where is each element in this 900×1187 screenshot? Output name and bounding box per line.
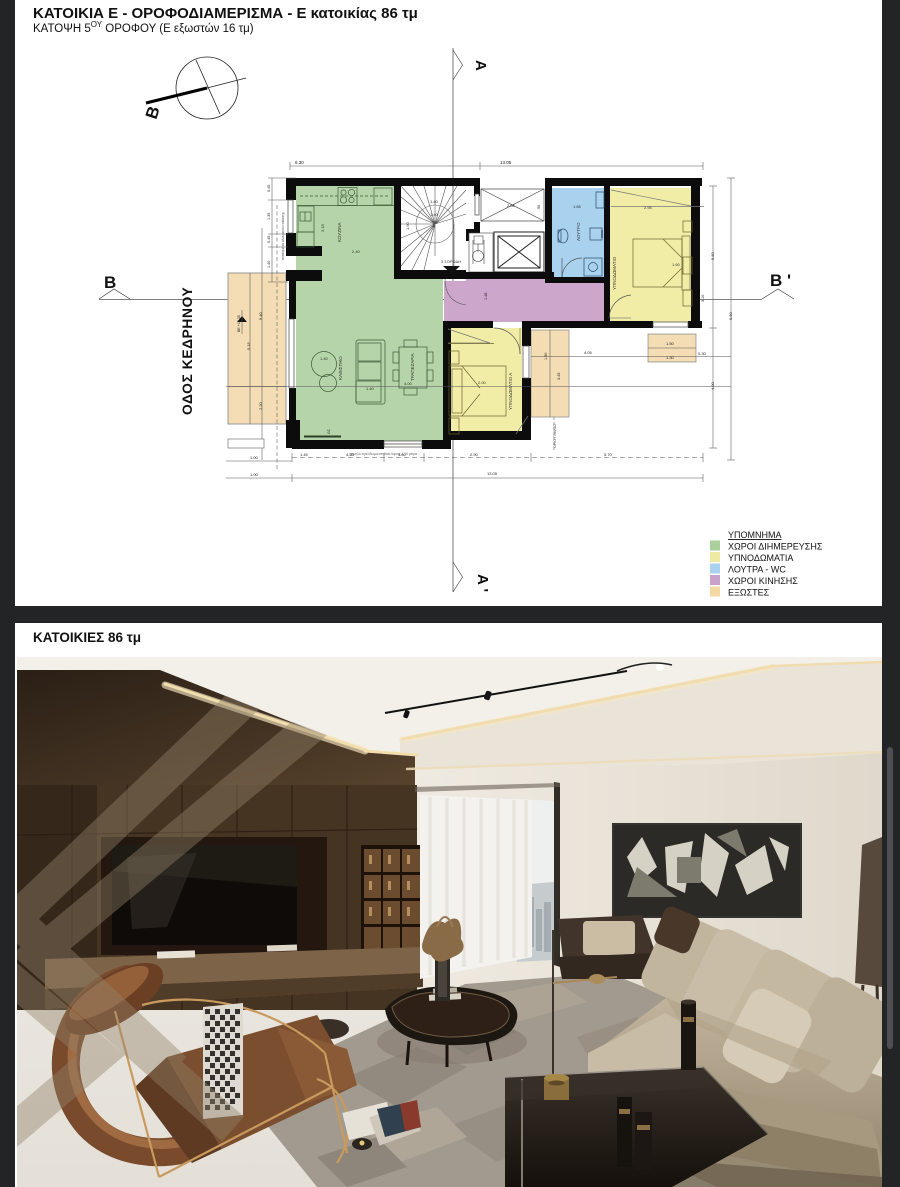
svg-text:2.95: 2.95 [644,205,653,210]
svg-text:9.50: 9.50 [728,311,733,320]
svg-text:1.60: 1.60 [672,262,681,267]
svg-text:A: A [472,60,489,71]
svg-text:9.40: 9.40 [258,311,263,320]
svg-text:0.45: 0.45 [267,236,271,243]
svg-text:4.00: 4.00 [710,381,715,390]
svg-text:0.30: 0.30 [698,351,707,356]
svg-text:ΥΠΟΜΝΗΜΑ: ΥΠΟΜΝΗΜΑ [728,530,782,540]
svg-text:13.05: 13.05 [500,160,512,165]
svg-text:χαμηλό κιγκλίδωμα/στηθαίο ύψου: χαμηλό κιγκλίδωμα/στηθαίο ύψους 1.10 μέτ… [350,452,417,456]
svg-text:3.45: 3.45 [557,373,561,380]
svg-text:1.35: 1.35 [267,213,271,220]
svg-text:13.05: 13.05 [487,471,498,476]
svg-text:ΤΡΑΠΕΖΑΡΙΑ: ΤΡΑΠΕΖΑΡΙΑ [410,353,415,381]
svg-text:5.50: 5.50 [710,251,715,260]
svg-text:1.00: 1.00 [250,455,259,460]
svg-text:2.90: 2.90 [470,452,479,457]
svg-text:1.00: 1.00 [250,472,259,477]
svg-text:1.85: 1.85 [573,204,582,209]
svg-text:B: B [142,104,164,122]
svg-text:2.20: 2.20 [258,401,263,410]
svg-text:1.40: 1.40 [320,356,329,361]
svg-text:3.10: 3.10 [701,295,705,302]
svg-text:1.48: 1.48 [484,293,488,300]
svg-text:ΚΑΘΙΣΤΙΚΟ: ΚΑΘΙΣΤΙΚΟ [338,356,343,380]
svg-text:ΧΩΡΟΙ ΔΙΗΜΕΡΕΥΣΗΣ: ΧΩΡΟΙ ΔΙΗΜΕΡΕΥΣΗΣ [728,542,823,552]
svg-text:4.05: 4.05 [584,350,593,355]
svg-text:1.45: 1.45 [300,452,309,457]
svg-text:ΕΞΩΣΤΕΣ: ΕΞΩΣΤΕΣ [728,588,770,598]
svg-text:ΛΟΥΤΡΟ: ΛΟΥΤΡΟ [576,222,581,241]
svg-text:2.05: 2.05 [507,203,516,208]
svg-text:2.40: 2.40 [352,249,361,254]
svg-text:1.40: 1.40 [267,261,271,268]
svg-text:5.70: 5.70 [604,452,613,457]
svg-text:ΚΟΥΖΙΝΑ: ΚΟΥΖΙΝΑ [337,223,342,242]
svg-text:2.00: 2.00 [478,380,487,385]
svg-text:πετάσματα αλουμινίου σκίασης: πετάσματα αλουμινίου σκίασης [281,212,285,260]
svg-text:6.30: 6.30 [295,160,304,165]
svg-text:ΥΠΝΟΔΩΜΑΤΙΟ Α: ΥΠΝΟΔΩΜΑΤΙΟ Α [508,373,513,410]
svg-text:ΟΔΟΣ ΚΕΔΡΗΝΟΥ: ΟΔΟΣ ΚΕΔΡΗΝΟΥ [180,287,195,415]
svg-text:1.40: 1.40 [430,212,439,217]
svg-text:3 ΣΟΡΩΔΗ: 3 ΣΟΡΩΔΗ [441,259,461,264]
svg-text:ΛΟΥΤΡΑ - WC: ΛΟΥΤΡΑ - WC [728,565,786,575]
svg-text:ΥΠΝΟΔΩΜΑΤΙΟ: ΥΠΝΟΔΩΜΑΤΙΟ [612,256,617,290]
svg-text:.90: .90 [537,205,541,210]
svg-text:ΥΠΝΟΔΩΜΑΤΙΑ: ΥΠΝΟΔΩΜΑΤΙΑ [728,553,793,563]
svg-text:ΒΕ +15.35: ΒΕ +15.35 [237,315,241,332]
svg-text:ΟΡΙΟ ΠΛΑΚΑΣ: ΟΡΙΟ ΠΛΑΚΑΣ [553,423,557,448]
svg-text:A ': A ' [474,574,491,592]
svg-text:B ': B ' [770,271,791,290]
svg-text:5.15: 5.15 [246,341,251,350]
svg-text:ΘΣ: ΘΣ [327,428,331,434]
svg-text:1.50: 1.50 [666,341,675,346]
svg-text:ΧΩΡΟΙ ΚΙΝΗΣΗΣ: ΧΩΡΟΙ ΚΙΝΗΣΗΣ [728,576,798,586]
svg-text:1.30: 1.30 [666,355,675,360]
svg-text:3.18: 3.18 [320,223,325,232]
svg-text:4.00: 4.00 [404,381,413,386]
svg-text:0.45: 0.45 [267,185,271,192]
svg-text:1.40: 1.40 [430,199,439,204]
svg-text:1.90: 1.90 [544,353,548,360]
svg-text:1.90: 1.90 [405,221,410,230]
